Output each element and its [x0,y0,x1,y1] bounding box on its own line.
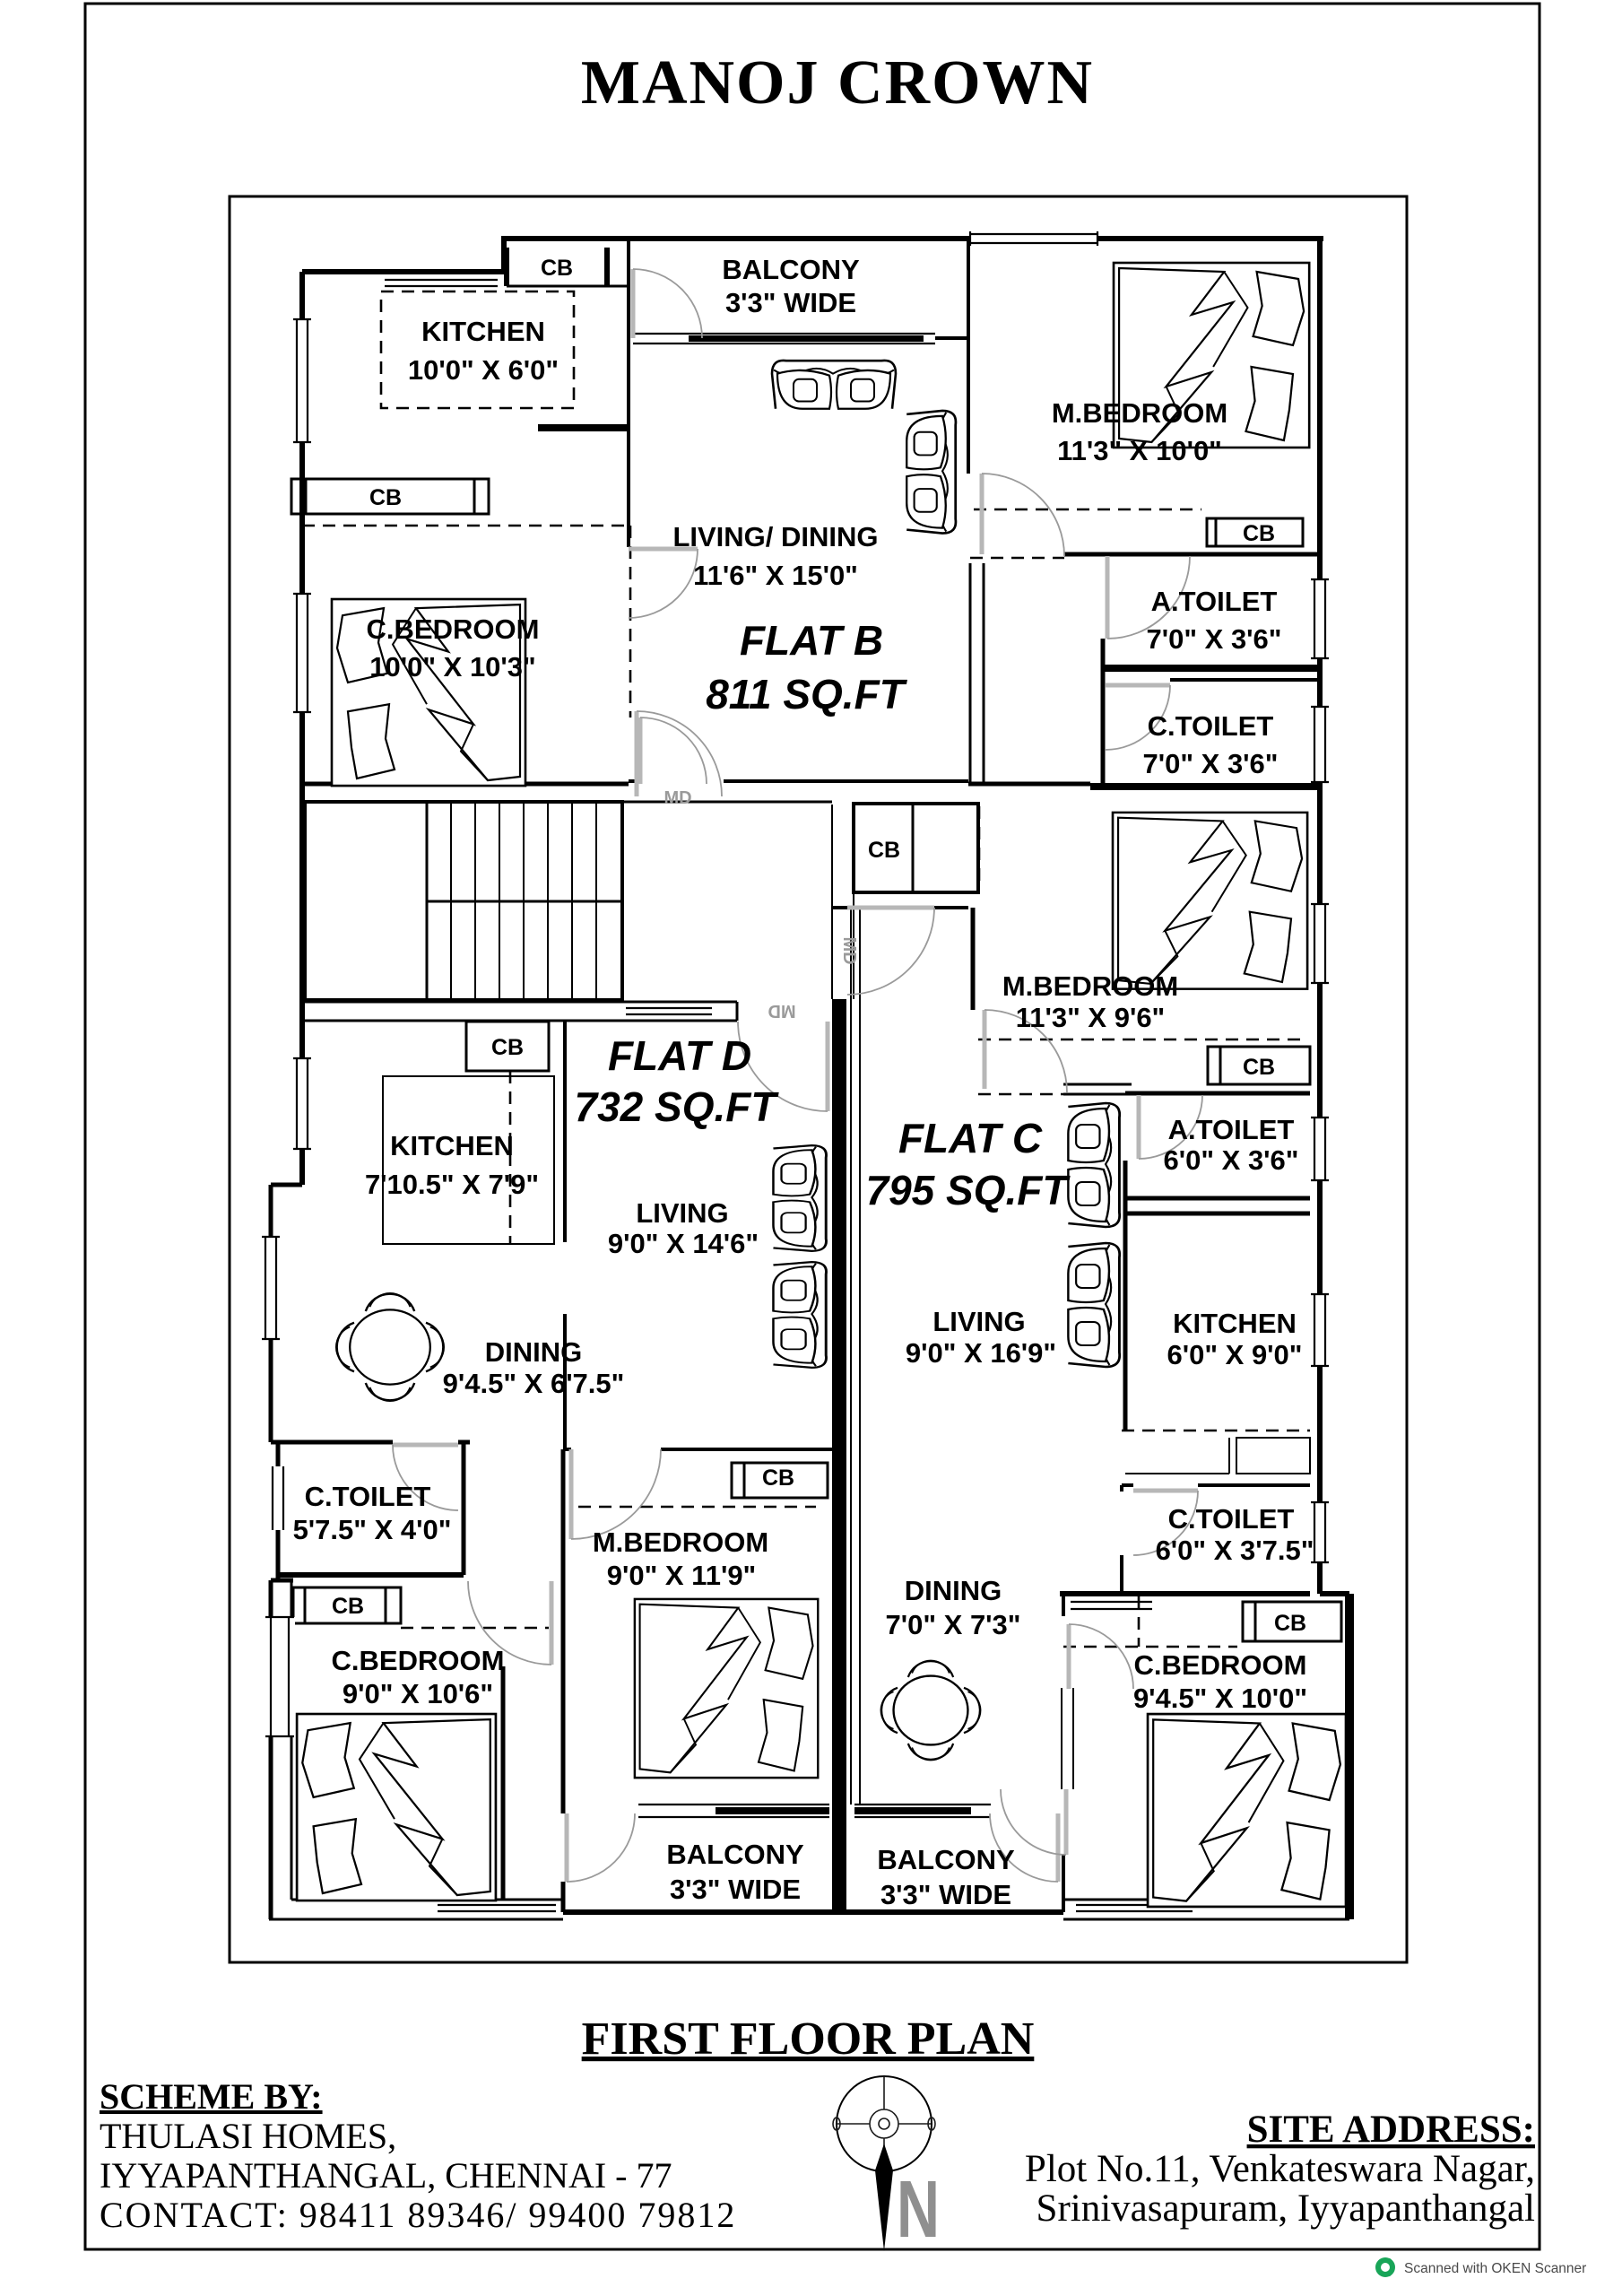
svg-text:MD: MD [664,788,691,808]
svg-text:3'3" WIDE: 3'3" WIDE [670,1874,801,1905]
svg-text:7'0" X 3'6": 7'0" X 3'6" [1146,623,1281,655]
svg-text:FLAT D: FLAT D [608,1032,751,1079]
svg-text:CB: CB [868,838,900,863]
svg-text:11'3" X 9'6": 11'3" X 9'6" [1016,1002,1166,1033]
svg-text:5'7.5" X 4'0": 5'7.5" X 4'0" [293,1514,452,1545]
svg-text:C.BEDROOM: C.BEDROOM [367,613,540,645]
svg-text:Srinivasapuram, Iyyapanthangal: Srinivasapuram, Iyyapanthangal [1037,2187,1535,2230]
svg-text:BALCONY: BALCONY [722,254,860,285]
svg-text:9'0" X 10'6": 9'0" X 10'6" [343,1678,493,1709]
svg-text:9'4.5" X 10'0": 9'4.5" X 10'0" [1133,1683,1307,1714]
svg-text:CB: CB [369,485,402,510]
svg-text:M.BEDROOM: M.BEDROOM [593,1526,768,1558]
svg-text:7'10.5" X 7'9": 7'10.5" X 7'9" [365,1169,539,1200]
svg-text:9'0" X 14'6": 9'0" X 14'6" [608,1228,759,1259]
svg-text:THULASI HOMES,: THULASI HOMES, [100,2116,396,2156]
svg-text:811 SQ.FT: 811 SQ.FT [706,671,907,717]
svg-text:LIVING: LIVING [932,1306,1025,1337]
svg-text:KITCHEN: KITCHEN [390,1130,514,1161]
svg-text:MANOJ CROWN: MANOJ CROWN [581,48,1094,117]
svg-text:Scanned with OKEN Scanner: Scanned with OKEN Scanner [1404,2261,1586,2276]
svg-text:LIVING: LIVING [636,1197,728,1229]
svg-text:A.TOILET: A.TOILET [1151,586,1278,617]
svg-text:SITE ADDRESS:: SITE ADDRESS: [1247,2109,1535,2151]
svg-text:CB: CB [332,1594,364,1619]
svg-text:MD: MD [768,1001,795,1021]
svg-text:10'0" X 6'0": 10'0" X 6'0" [408,354,559,386]
svg-text:A.TOILET: A.TOILET [1168,1114,1295,1145]
svg-text:CB: CB [1243,521,1275,546]
svg-text:7'0" X 3'6": 7'0" X 3'6" [1142,748,1278,779]
svg-text:SCHEME BY:: SCHEME BY: [100,2076,323,2117]
svg-text:9'4.5" X 6'7.5": 9'4.5" X 6'7.5" [443,1368,625,1399]
svg-text:MD: MD [839,936,859,964]
svg-text:CB: CB [491,1035,524,1060]
svg-text:CB: CB [541,256,573,281]
svg-text:9'0" X 11'9": 9'0" X 11'9" [607,1560,757,1591]
svg-text:DINING: DINING [485,1336,583,1368]
svg-text:CB: CB [762,1465,794,1491]
svg-text:CONTACT: 98411 89346/ 99400 79: CONTACT: 98411 89346/ 99400 79812 [100,2195,736,2235]
svg-text:11'3" X 10'0": 11'3" X 10'0" [1057,435,1222,466]
svg-text:CB: CB [1274,1611,1306,1636]
svg-text:N: N [897,2165,940,2255]
svg-text:9'0" X 16'9": 9'0" X 16'9" [906,1337,1056,1369]
svg-text:CB: CB [1243,1055,1275,1080]
svg-text:BALCONY: BALCONY [877,1844,1015,1875]
svg-text:LIVING/ DINING: LIVING/ DINING [672,521,878,552]
svg-text:795 SQ.FT: 795 SQ.FT [866,1167,1071,1213]
svg-text:FLAT B: FLAT B [740,617,883,664]
svg-text:732 SQ.FT: 732 SQ.FT [575,1083,780,1130]
svg-text:FIRST FLOOR PLAN: FIRST FLOOR PLAN [582,2013,1035,2065]
svg-text:IYYAPANTHANGAL, CHENNAI - 77: IYYAPANTHANGAL, CHENNAI - 77 [100,2155,672,2196]
svg-text:C.TOILET: C.TOILET [305,1481,431,1512]
svg-text:KITCHEN: KITCHEN [1173,1308,1297,1339]
svg-text:C.TOILET: C.TOILET [1168,1503,1295,1535]
svg-text:Plot No.11, Venkateswara Nagar: Plot No.11, Venkateswara Nagar, [1025,2148,1535,2190]
svg-text:6'0" X 3'6": 6'0" X 3'6" [1163,1144,1298,1176]
svg-text:FLAT C: FLAT C [898,1115,1043,1161]
svg-text:6'0" X 9'0": 6'0" X 9'0" [1167,1339,1302,1370]
svg-text:6'0" X 3'7.5": 6'0" X 3'7.5" [1156,1535,1314,1566]
svg-text:3'3" WIDE: 3'3" WIDE [725,287,856,318]
svg-text:M.BEDROOM: M.BEDROOM [1002,970,1178,1002]
svg-text:M.BEDROOM: M.BEDROOM [1052,397,1227,429]
svg-text:3'3" WIDE: 3'3" WIDE [880,1879,1011,1910]
svg-text:10'0" X 10'3": 10'0" X 10'3" [369,651,536,683]
svg-text:KITCHEN: KITCHEN [421,316,545,347]
svg-text:C.BEDROOM: C.BEDROOM [332,1645,505,1676]
svg-text:11'6" X 15'0": 11'6" X 15'0" [693,560,858,591]
svg-text:DINING: DINING [905,1575,1002,1606]
svg-text:7'0" X 7'3": 7'0" X 7'3" [885,1609,1020,1640]
svg-text:C.TOILET: C.TOILET [1148,710,1274,742]
svg-text:BALCONY: BALCONY [666,1839,804,1870]
svg-text:C.BEDROOM: C.BEDROOM [1134,1649,1307,1681]
